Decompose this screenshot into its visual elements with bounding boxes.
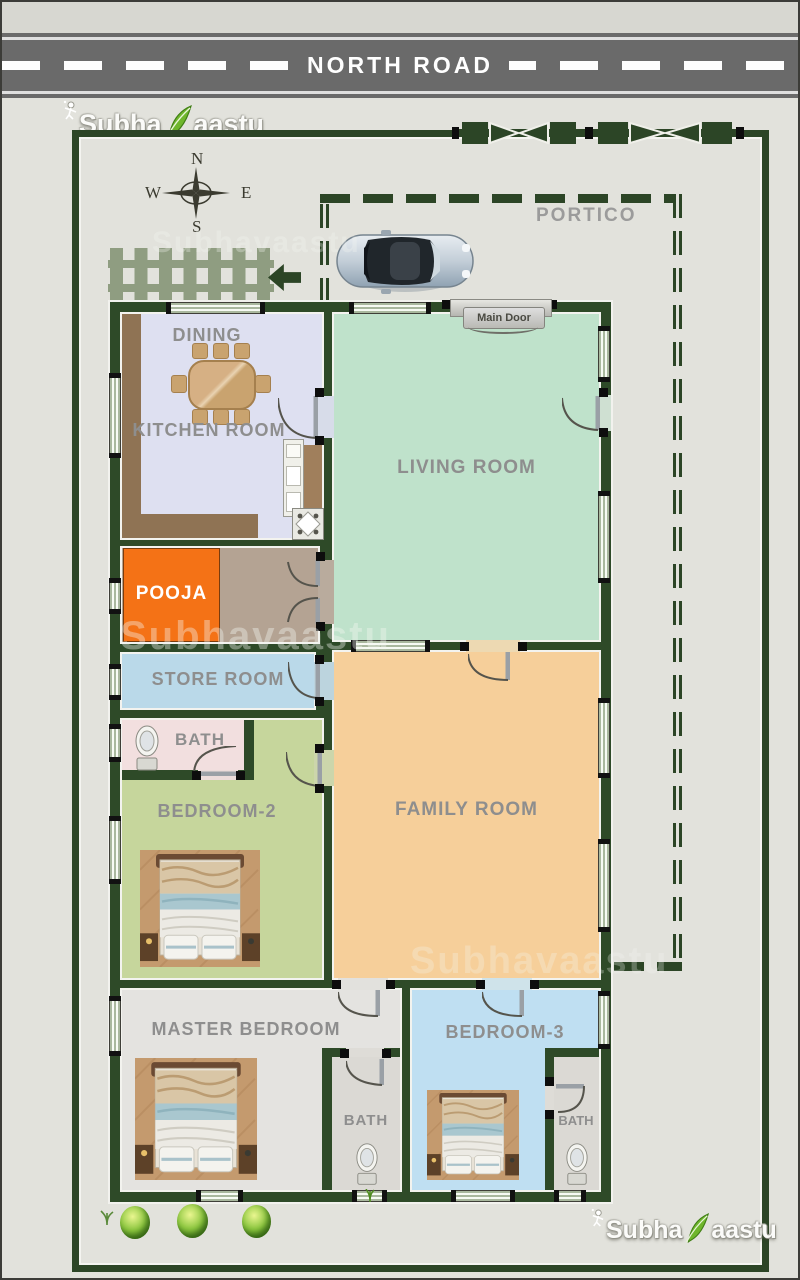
bed-photo-bedroom3 [427, 1090, 519, 1180]
window [598, 492, 610, 582]
dining-chair [255, 375, 271, 393]
portico-dash-top [320, 194, 664, 203]
door-bedroom2 [286, 750, 322, 788]
hinge-mark [315, 744, 324, 753]
window [350, 302, 430, 314]
toilet-icon [354, 1142, 380, 1188]
hinge-mark [599, 388, 608, 397]
door-opening [346, 1048, 384, 1057]
door-opening [545, 1084, 554, 1112]
stick-figure-icon [62, 100, 78, 120]
dining-chair [171, 375, 187, 393]
kitchen-stove [292, 508, 324, 540]
window [109, 374, 121, 457]
hinge-mark [460, 642, 469, 651]
label-living: LIVING ROOM [364, 457, 569, 479]
hinge-mark [545, 1077, 554, 1086]
stick-figure-icon [590, 1208, 605, 1227]
brand-text-2: aastu [711, 1218, 776, 1243]
label-store: STORE ROOM [132, 669, 304, 690]
hinge-mark [316, 552, 325, 561]
window [452, 1190, 514, 1202]
portico-dash-right [673, 194, 682, 966]
window [598, 699, 610, 777]
bush [177, 1204, 208, 1238]
door-bath-east [556, 1084, 586, 1114]
kitchen-counter [301, 445, 322, 515]
top-margin [2, 2, 798, 33]
door-opening [338, 978, 388, 990]
hinge-mark [340, 1049, 349, 1058]
hinge-mark [236, 771, 245, 780]
watermark: Subhavaastu [410, 940, 669, 983]
label-dining: DINING [142, 325, 272, 346]
road-label: NORTH ROAD [2, 50, 798, 81]
door-master [338, 990, 380, 1018]
window [598, 992, 610, 1048]
hinge-mark [315, 388, 324, 397]
road-edge-line [2, 37, 798, 40]
wall-segment [244, 720, 254, 770]
door-bedroom3 [482, 990, 524, 1018]
label-pooja: POOJA [124, 583, 219, 605]
watermark: Subhavaastu [152, 226, 361, 260]
door-bath-master [346, 1059, 384, 1087]
label-bedroom3: BEDROOM-3 [420, 1022, 590, 1043]
road-edge-line [2, 91, 798, 94]
kitchen-counter [122, 514, 258, 538]
label-family: FAMILY ROOM [354, 799, 579, 821]
window [109, 725, 121, 761]
hinge-mark [599, 428, 608, 437]
compass-e: E [241, 183, 251, 202]
label-bath-east: BATH [552, 1113, 600, 1128]
compass-w: W [145, 183, 162, 202]
hinge-mark [192, 771, 201, 780]
window [109, 817, 121, 883]
label-bath-west: BATH [160, 730, 240, 750]
window [109, 997, 121, 1055]
dining-table [188, 360, 256, 410]
bed-photo-bedroom2 [140, 850, 260, 967]
hinge-mark [518, 642, 527, 651]
hinge-mark [315, 697, 324, 706]
window [109, 665, 121, 699]
window [197, 1190, 242, 1202]
hinge-mark [315, 784, 324, 793]
door-opening [599, 395, 611, 431]
hinge-mark [315, 436, 324, 445]
leaf-icon [683, 1212, 710, 1243]
brand-text-1: Subha [606, 1218, 682, 1243]
hinge-mark [382, 1049, 391, 1058]
label-master: MASTER BEDROOM [130, 1019, 362, 1040]
toilet-icon [564, 1142, 590, 1188]
floor-plan-canvas: NORTH ROAD Subha aastu N W E S [0, 0, 800, 1280]
wall-segment [322, 1048, 332, 1190]
compass-icon: N W E S [137, 150, 257, 236]
watermark: Subhavaastu [120, 614, 391, 659]
portico-label: PORTICO [536, 205, 637, 227]
compass-n: N [191, 150, 203, 168]
bush [120, 1206, 150, 1239]
bed-photo-master [135, 1058, 257, 1180]
hinge-mark [386, 980, 395, 989]
toilet-icon [134, 724, 160, 774]
kitchen-sink [283, 439, 304, 517]
main-door-arc [468, 320, 538, 334]
window [167, 302, 264, 314]
grass-icon [98, 1210, 116, 1225]
main-gate-icon [452, 119, 744, 147]
label-bedroom2: BEDROOM-2 [132, 801, 302, 822]
window [598, 327, 610, 381]
bush [242, 1205, 271, 1238]
door-living-east [562, 396, 600, 432]
label-kitchen: KITCHEN ROOM [124, 420, 294, 441]
grass-icon [362, 1189, 378, 1202]
window [598, 840, 610, 931]
hinge-mark [332, 980, 341, 989]
label-bath-master: BATH [332, 1112, 400, 1129]
vent-window [555, 1190, 585, 1202]
brand-logo-bottom: Subha aastu [590, 1208, 777, 1243]
window [109, 579, 121, 613]
door-family [468, 652, 510, 682]
door-opening [466, 640, 520, 652]
